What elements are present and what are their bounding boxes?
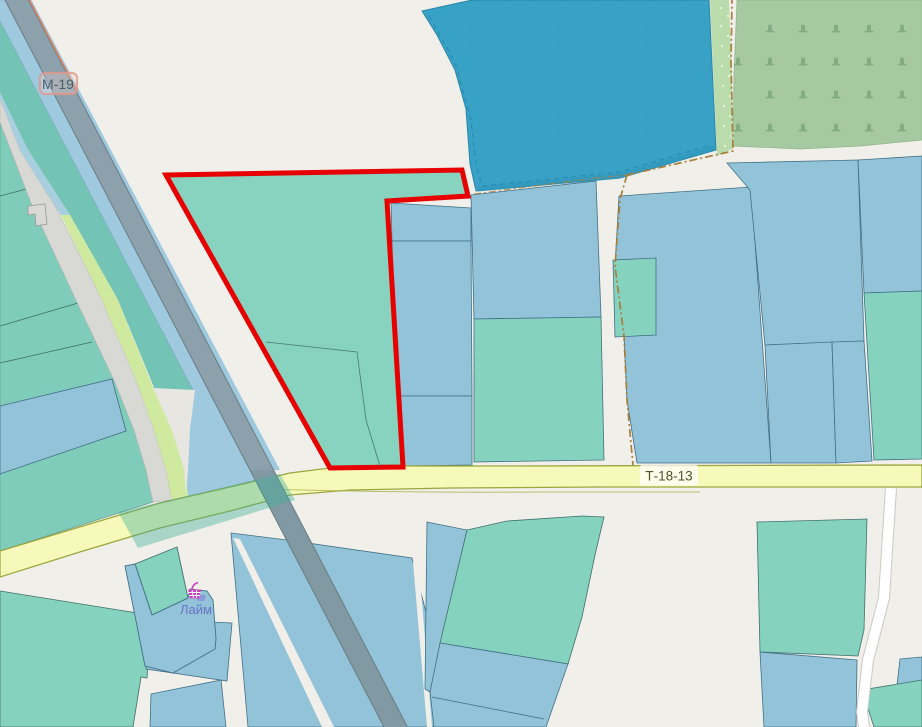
svg-text:Т-18-13: Т-18-13 [645,469,692,484]
svg-text:M-19: M-19 [42,76,74,92]
svg-text:Лайм: Лайм [180,602,212,617]
